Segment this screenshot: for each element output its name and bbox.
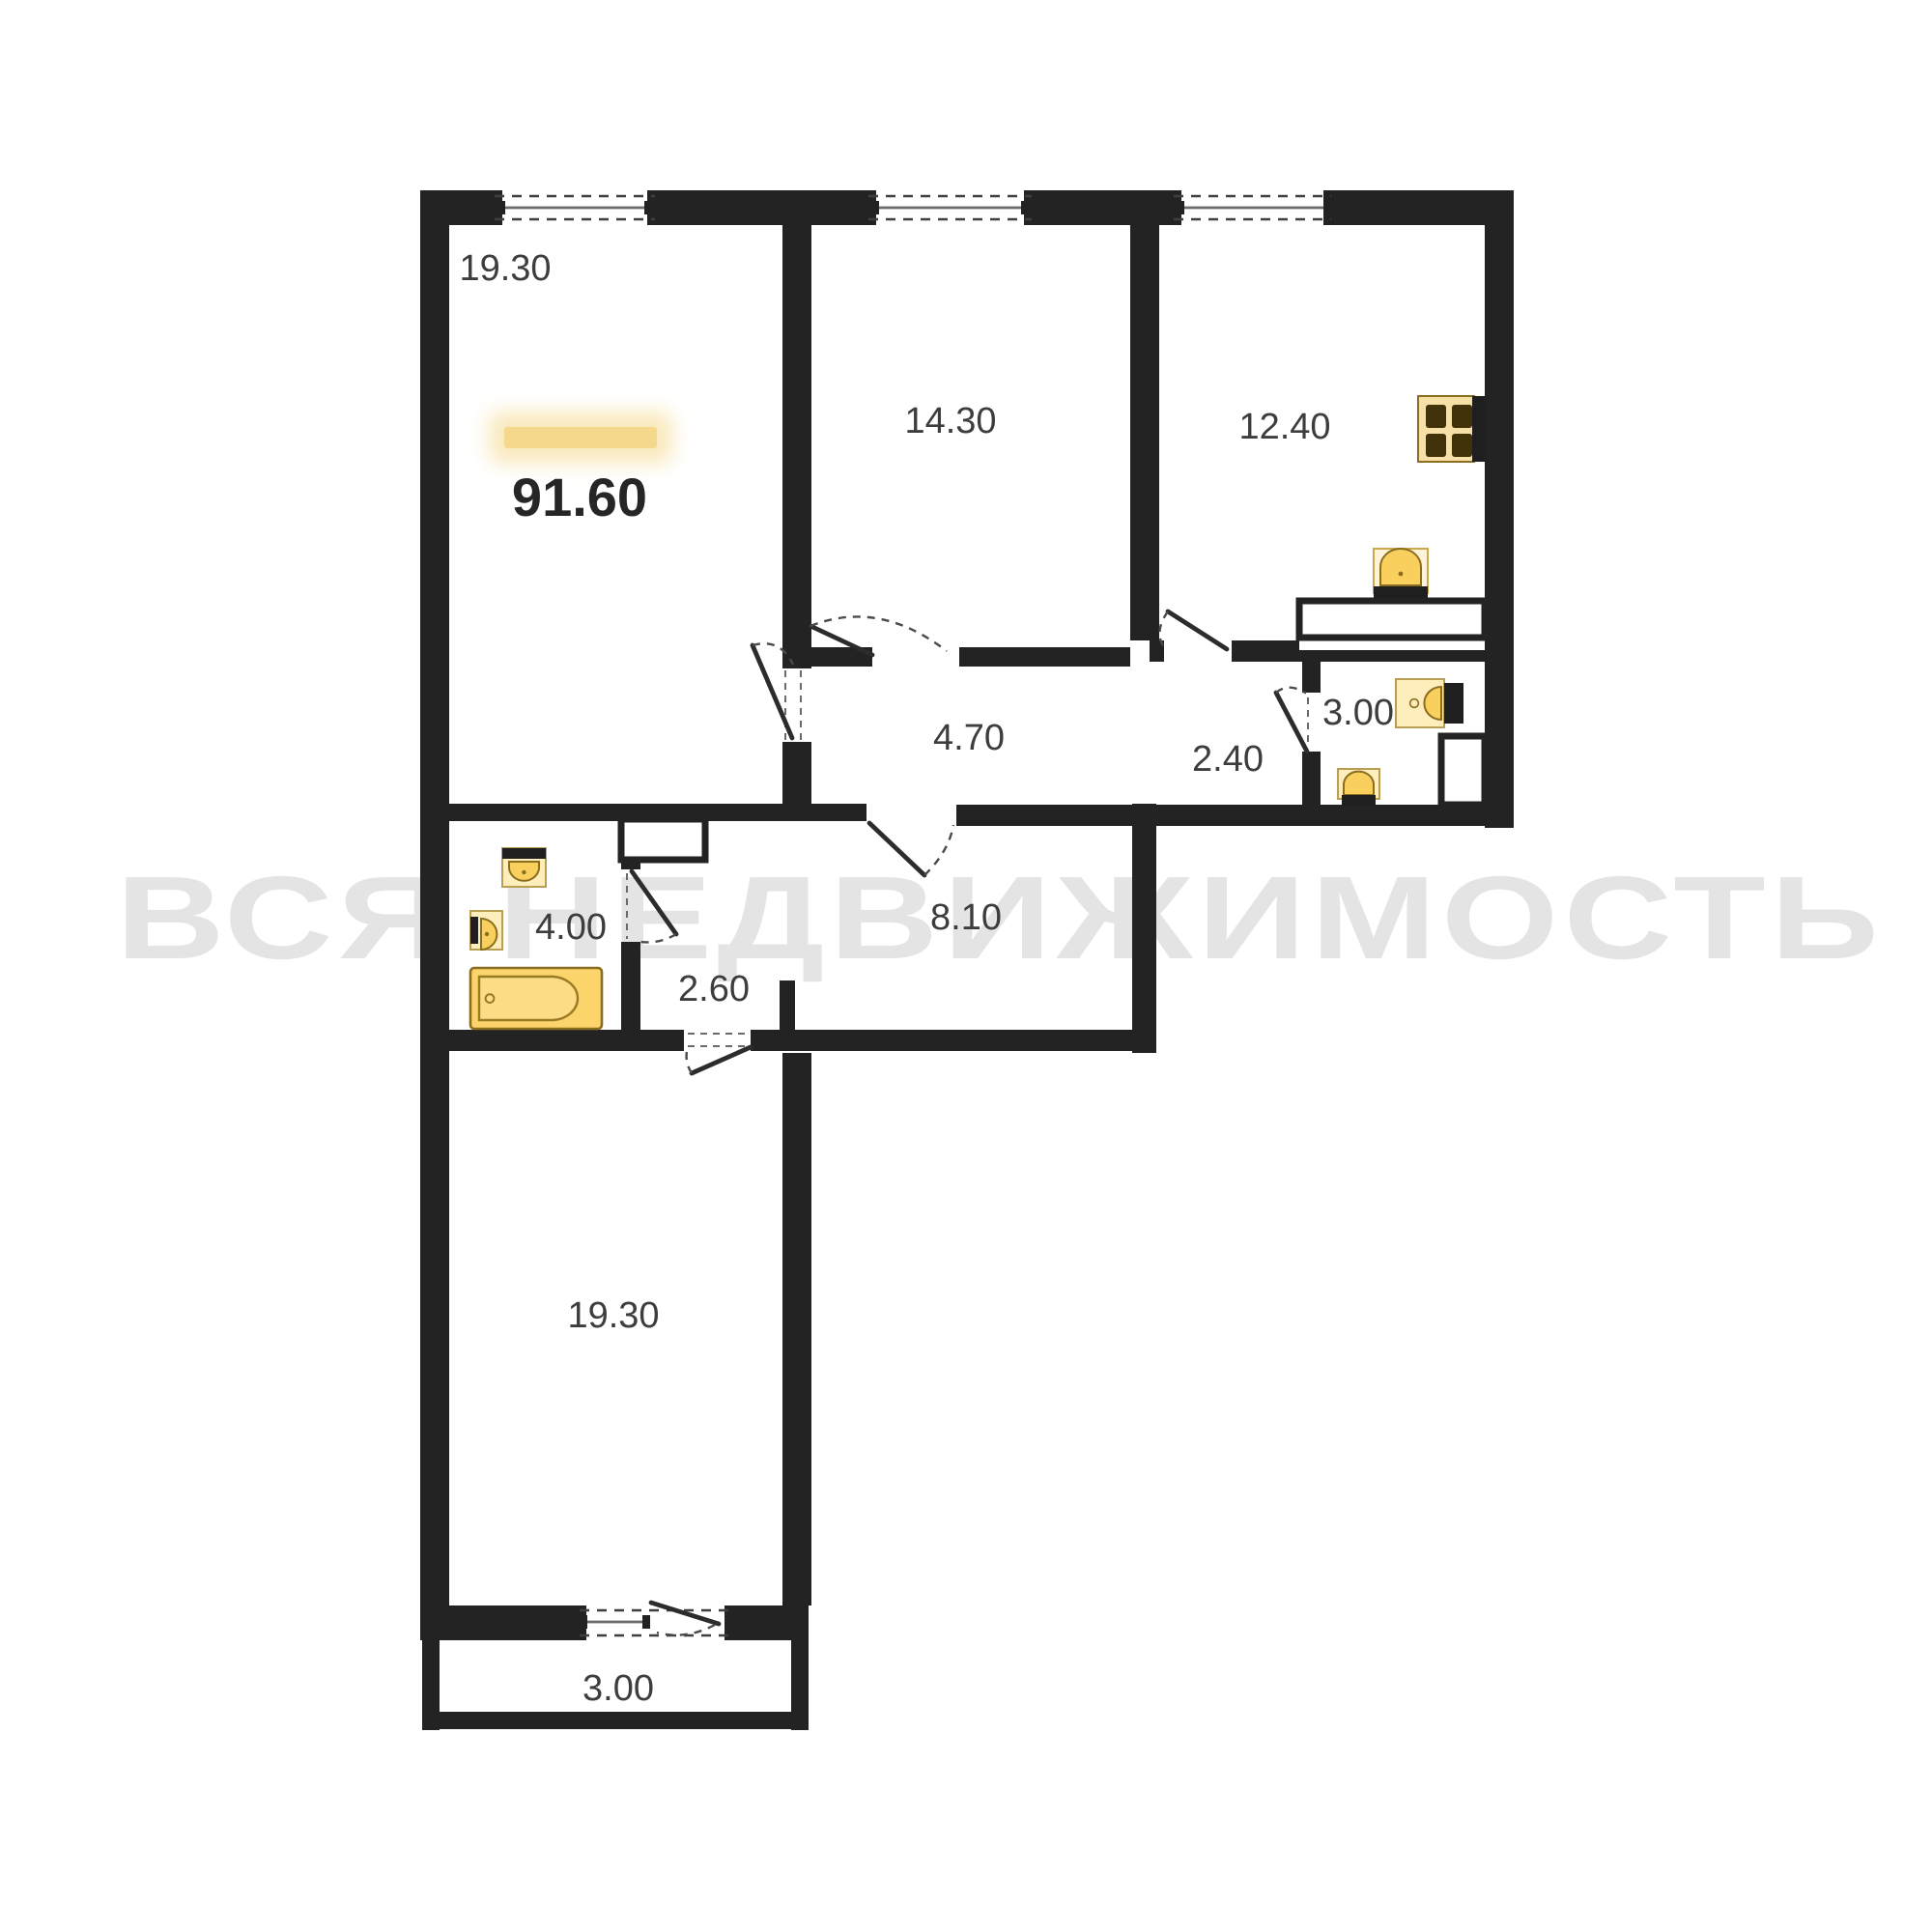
room-label-hall-inner: 2.60 bbox=[678, 969, 750, 1009]
room-label-hallway: 8.10 bbox=[930, 897, 1002, 938]
room-label-balcony: 3.00 bbox=[582, 1668, 654, 1709]
bathtub-icon bbox=[470, 968, 602, 1029]
duct-shaft-box bbox=[621, 819, 705, 860]
toilet-icon bbox=[1396, 679, 1463, 727]
room-label-hall-entry: 2.40 bbox=[1192, 739, 1264, 780]
room-label-living-top: 19.30 bbox=[459, 248, 551, 289]
room-label-kitchen: 12.40 bbox=[1238, 407, 1330, 447]
total-area-highlight bbox=[504, 427, 657, 448]
total-area-block: 91.60 bbox=[489, 412, 672, 527]
toilet-icon bbox=[502, 848, 546, 887]
room-label-living-bottom: 19.30 bbox=[567, 1295, 659, 1336]
kitchen-counter bbox=[1299, 601, 1485, 638]
stove-icon bbox=[1418, 396, 1485, 462]
floorplan-svg: ВСЯ НЕДВИЖИМОСТЬ bbox=[0, 0, 1932, 1932]
room-label-corridor: 4.70 bbox=[933, 718, 1005, 758]
sink-icon bbox=[1338, 769, 1379, 806]
room-label-bathroom: 4.00 bbox=[535, 907, 607, 948]
sink-icon bbox=[1374, 549, 1428, 598]
total-area-label: 91.60 bbox=[512, 467, 647, 527]
floorplan-page: ВСЯ НЕДВИЖИМОСТЬ bbox=[0, 0, 1932, 1932]
sink-icon bbox=[470, 911, 502, 950]
wc-niche bbox=[1441, 736, 1485, 805]
room-label-wc: 3.00 bbox=[1322, 693, 1394, 733]
room-label-bedroom: 14.30 bbox=[904, 401, 996, 441]
